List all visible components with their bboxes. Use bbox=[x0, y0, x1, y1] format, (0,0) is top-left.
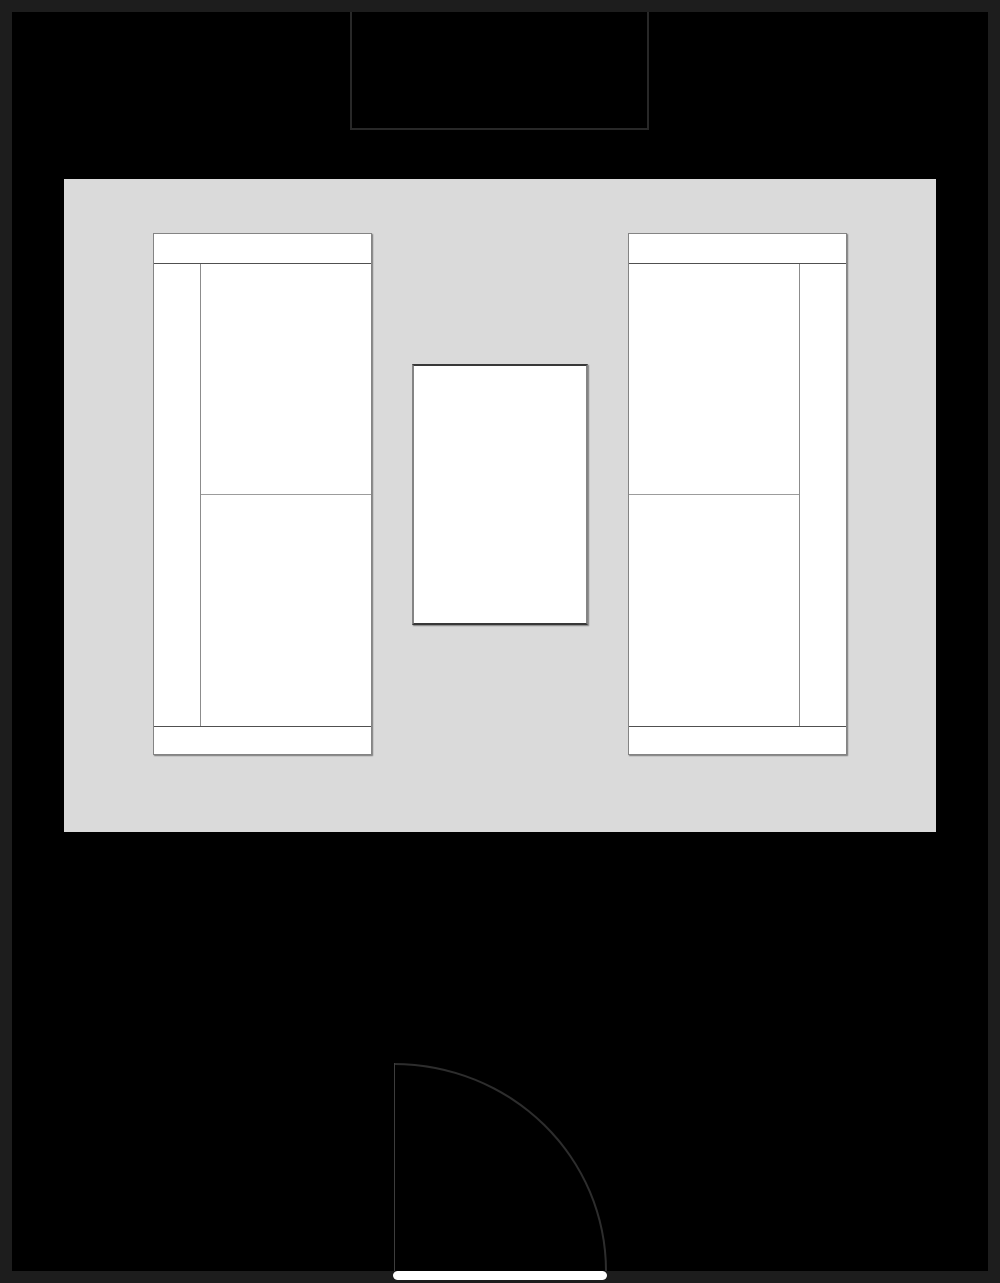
sofa-left-cushion-line bbox=[201, 494, 371, 495]
door-leaf bbox=[394, 1063, 395, 1271]
sofa-right-backrest-line bbox=[799, 264, 800, 726]
sofa-right-armrest-line-bottom bbox=[629, 726, 846, 727]
floor-plan-canvas bbox=[0, 0, 1000, 1283]
sofa-right-cushion-line bbox=[629, 494, 799, 495]
sofa-left-backrest-line bbox=[200, 264, 201, 726]
sofa-right-armrest-line-top bbox=[629, 263, 846, 264]
door-swing-arc bbox=[394, 1063, 607, 1271]
sofa-left-armrest-line-top bbox=[154, 263, 371, 264]
window-niche bbox=[350, 12, 649, 130]
sofa-left-armrest-line-bottom bbox=[154, 726, 371, 727]
coffee-table bbox=[412, 364, 588, 625]
door-opening-threshold bbox=[393, 1271, 607, 1280]
